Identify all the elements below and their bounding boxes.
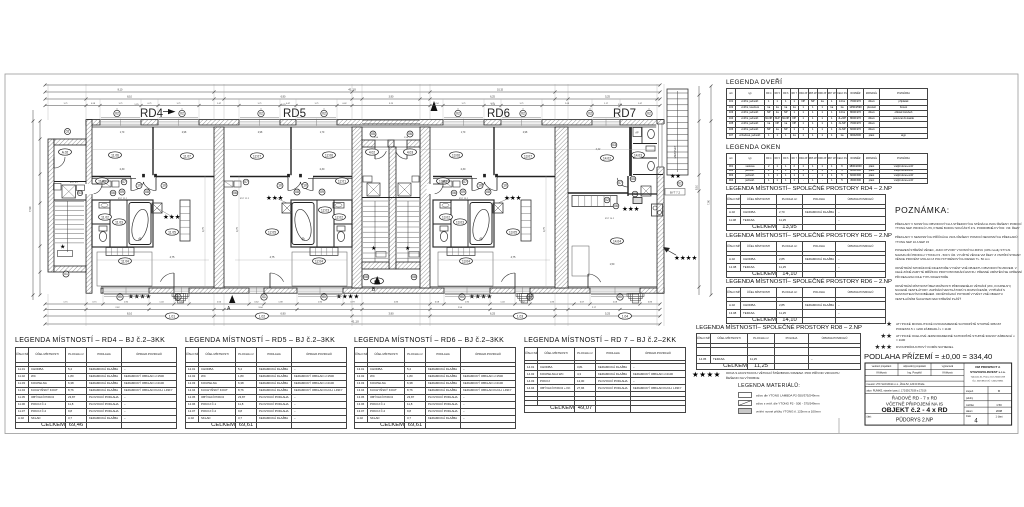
- svg-text:02: 02: [259, 112, 263, 116]
- svg-text:07: 07: [122, 180, 126, 184]
- svg-text:akce: RUMIKE, stavební parc: akce: RUMIKE, stavební parc.č. 172/35/17…: [867, 390, 927, 393]
- svg-text:stupeň: stupeň: [966, 390, 974, 393]
- svg-text:1.02: 1.02: [259, 314, 265, 318]
- svg-text:13.02: 13.02: [442, 215, 450, 219]
- svg-text:02: 02: [521, 112, 525, 116]
- svg-text:★: ★: [60, 244, 65, 251]
- svg-text:1.71: 1.71: [176, 103, 181, 105]
- svg-text:MEZONET: MEZONET: [673, 145, 677, 158]
- svg-text:12.07: 12.07: [253, 154, 261, 158]
- svg-text:RD4: RD4: [140, 108, 164, 120]
- svg-text:2,98: 2,98: [523, 132, 528, 134]
- svg-text:13.03: 13.03: [456, 220, 464, 224]
- svg-text:RD5: RD5: [283, 108, 306, 120]
- svg-text:1.71: 1.71: [63, 301, 68, 303]
- svg-text:13.07: 13.07: [524, 154, 532, 158]
- svg-text:polohy: polohy: [966, 397, 974, 400]
- svg-text:5,25: 5,25: [605, 95, 610, 98]
- svg-text:08: 08: [486, 190, 490, 194]
- svg-text:3,90: 3,90: [388, 312, 394, 316]
- svg-text:5,25: 5,25: [605, 312, 611, 316]
- svg-text:1,50: 1,50: [610, 263, 615, 266]
- svg-text:8,10: 8,10: [118, 88, 123, 91]
- svg-text:zdivo z vnitř. dle YTONG P2 -: zdivo z vnitř. dle YTONG P2 - 500 - 375/…: [756, 402, 820, 406]
- svg-text:11.03: 11.03: [115, 220, 123, 224]
- svg-text:10,15: 10,15: [497, 88, 504, 91]
- svg-text:05: 05: [631, 177, 635, 181]
- svg-text:10: 10: [278, 184, 282, 188]
- svg-text:1.38: 1.38: [278, 301, 283, 303]
- svg-text:02: 02: [115, 112, 119, 116]
- svg-text:0.83: 0.83: [648, 301, 653, 303]
- svg-text:0.67: 0.67: [286, 103, 291, 105]
- svg-text:3.25: 3.25: [389, 103, 394, 105]
- svg-text:07: 07: [244, 180, 248, 184]
- svg-text:Křížková: Křížková: [942, 370, 953, 374]
- svg-text:01: 01: [64, 272, 68, 276]
- svg-text:3.04: 3.04: [258, 307, 263, 309]
- svg-text:STAVOIZOLINVEST s.r.o.: STAVOIZOLINVEST s.r.o.: [970, 370, 1006, 374]
- svg-text:11.05: 11.05: [168, 230, 176, 234]
- svg-text:BYT 4.2: BYT 4.2: [70, 182, 79, 184]
- svg-text:2.08: 2.08: [613, 301, 618, 303]
- svg-text:10: 10: [137, 184, 141, 188]
- svg-text:1.67: 1.67: [638, 103, 643, 105]
- svg-text:PŮDORYS 2.NP: PŮDORYS 2.NP: [896, 417, 934, 424]
- svg-text:6,25: 6,25: [490, 312, 496, 316]
- svg-text:★★★: ★★★: [622, 205, 640, 213]
- svg-text:02: 02: [456, 112, 460, 116]
- svg-text:vypracoval: vypracoval: [942, 365, 954, 368]
- svg-text:0.71: 0.71: [92, 301, 97, 303]
- svg-text:4.02: 4.02: [369, 150, 375, 154]
- svg-text:07: 07: [618, 181, 622, 185]
- svg-text:1.17: 1.17: [604, 103, 609, 105]
- svg-text:Křížková: Křížková: [876, 370, 887, 374]
- svg-text:1.71: 1.71: [118, 103, 123, 105]
- svg-text:01: 01: [460, 295, 464, 299]
- svg-text:14.03: 14.03: [634, 153, 642, 157]
- svg-text:odpovědný projektant: odpovědný projektant: [903, 365, 926, 368]
- svg-text:1.67: 1.67: [217, 103, 222, 105]
- svg-text:Ing. Pospíšil: Ing. Pospíšil: [907, 370, 922, 374]
- svg-text:02: 02: [66, 130, 70, 134]
- svg-text:★★★: ★★★: [266, 194, 284, 202]
- svg-text:2.83: 2.83: [394, 301, 399, 303]
- svg-text:03: 03: [78, 191, 82, 195]
- svg-text:02: 02: [588, 112, 592, 116]
- svg-text:4: 4: [974, 419, 978, 425]
- svg-text:1:50: 1:50: [996, 403, 1002, 407]
- svg-text:06: 06: [111, 191, 115, 195]
- svg-text:12.02: 12.02: [335, 215, 343, 219]
- svg-text:6,90: 6,90: [280, 312, 286, 316]
- svg-text:2.08: 2.08: [565, 103, 570, 105]
- svg-text:10: 10: [303, 184, 307, 188]
- svg-text:1.92: 1.92: [124, 301, 129, 303]
- svg-text:1.04: 1.04: [159, 301, 164, 303]
- svg-text:02: 02: [180, 112, 184, 116]
- svg-text:část:: část:: [867, 416, 872, 419]
- svg-text:★★★★: ★★★★: [674, 254, 697, 262]
- svg-text:1.83: 1.83: [550, 301, 555, 303]
- svg-text:13.05: 13.05: [509, 230, 517, 234]
- svg-text:DM PROSPECT A: DM PROSPECT A: [975, 365, 1001, 369]
- svg-text:BYT 11.2: BYT 11.2: [118, 198, 128, 200]
- svg-text:12.05: 12.05: [268, 230, 276, 234]
- svg-text:investor: ZYF SLOVAKIA s.r.o: investor: ZYF SLOVAKIA s.r.o., Žitná 52,…: [867, 383, 926, 386]
- svg-text:09: 09: [120, 190, 124, 194]
- svg-text:01: 01: [118, 295, 122, 299]
- svg-text:BYT 7.2: BYT 7.2: [670, 190, 680, 194]
- svg-text:09: 09: [461, 190, 465, 194]
- svg-text:2.62: 2.62: [115, 307, 120, 309]
- svg-text:11.07: 11.07: [183, 154, 191, 158]
- svg-text:1,70: 1,70: [320, 132, 325, 134]
- svg-text:A.02: A.02: [62, 150, 69, 154]
- svg-text:08: 08: [412, 275, 416, 279]
- svg-text:4,75: 4,75: [270, 256, 275, 259]
- svg-text:0.58: 0.58: [435, 301, 440, 303]
- svg-text:01: 01: [678, 182, 682, 186]
- svg-text:06: 06: [233, 191, 237, 195]
- svg-text:vedoucí projektant: vedoucí projektant: [872, 365, 892, 368]
- svg-text:★: ★: [371, 245, 376, 252]
- svg-text:1,70: 1,70: [120, 132, 125, 134]
- svg-text:6,90: 6,90: [281, 95, 286, 98]
- svg-text:08: 08: [364, 275, 368, 279]
- svg-text:BYT 14.2: BYT 14.2: [605, 218, 615, 220]
- svg-text:0.62: 0.62: [254, 301, 259, 303]
- svg-text:0.67: 0.67: [580, 301, 585, 303]
- svg-text:1.71: 1.71: [519, 103, 524, 105]
- svg-text:OBJEKT č.2 - 4 x RD: OBJEKT č.2 - 4 x RD: [881, 407, 947, 414]
- svg-text:7,90: 7,90: [28, 206, 32, 212]
- svg-text:0.79: 0.79: [350, 301, 355, 303]
- svg-text:2,30: 2,30: [461, 168, 466, 171]
- svg-text:2008: 2008: [996, 409, 1003, 413]
- svg-text:2,98: 2,98: [258, 132, 263, 134]
- svg-text:A: A: [227, 306, 231, 312]
- svg-text:13.06: 13.06: [452, 153, 460, 157]
- svg-text:RD6: RD6: [487, 108, 510, 120]
- svg-text:datum: datum: [966, 410, 973, 413]
- svg-text:0.62: 0.62: [342, 103, 347, 105]
- svg-text:12.03: 12.03: [321, 208, 329, 212]
- svg-text:09: 09: [320, 190, 324, 194]
- svg-text:1.01: 1.01: [169, 314, 175, 318]
- svg-text:4.03: 4.03: [407, 150, 413, 154]
- svg-text:1.04: 1.04: [622, 314, 628, 318]
- svg-text:BYT 13.2: BYT 13.2: [459, 198, 469, 200]
- svg-text:8,10: 8,10: [127, 312, 133, 316]
- svg-text:★: ★: [405, 245, 410, 252]
- svg-text:ŘADOVÉ RD - 7 x RD: ŘADOVÉ RD - 7 x RD: [892, 394, 938, 401]
- svg-text:zdivo dle YTONG LAMBDA P2-350/: zdivo dle YTONG LAMBDA P2-350/375/249mm: [756, 394, 820, 398]
- svg-text:4,75: 4,75: [236, 227, 239, 232]
- svg-text:4,75: 4,75: [202, 227, 205, 232]
- svg-text:1 část: 1 část: [996, 415, 1003, 419]
- svg-text:11.06: 11.06: [111, 153, 119, 157]
- svg-text:1.92: 1.92: [465, 301, 470, 303]
- svg-text:VČETNĚ PŘIPOJENÍ NA IS: VČETNĚ PŘIPOJENÍ NA IS: [886, 400, 943, 407]
- svg-text:1,50: 1,50: [404, 137, 409, 139]
- svg-text:Táborská 31, Praha 4 tel: 261: Táborská 31, Praha 4 tel: 261215728: [971, 376, 1006, 379]
- svg-text:IČo: 45274851 DIČ: CZ45274851: IČo: 45274851 DIČ: CZ45274851: [972, 380, 1004, 383]
- svg-text:★★★: ★★★: [163, 213, 181, 221]
- svg-text:05: 05: [371, 132, 375, 136]
- svg-text:BYT 12.2: BYT 12.2: [240, 198, 250, 200]
- svg-text:14.04: 14.04: [613, 239, 621, 243]
- svg-text:1.71: 1.71: [461, 103, 466, 105]
- svg-text:12.01: 12.01: [338, 179, 346, 183]
- svg-text:06: 06: [614, 204, 618, 208]
- svg-text:08: 08: [145, 190, 149, 194]
- svg-text:číslo: číslo: [966, 415, 972, 418]
- svg-text:01: 01: [322, 295, 326, 299]
- svg-text:4,75: 4,75: [543, 227, 546, 232]
- svg-text:0.71: 0.71: [147, 103, 152, 105]
- svg-text:1.71: 1.71: [257, 103, 262, 105]
- svg-text:1.71: 1.71: [63, 103, 68, 105]
- svg-text:03: 03: [612, 143, 616, 147]
- svg-text:10: 10: [162, 184, 166, 188]
- svg-text:06: 06: [452, 191, 456, 195]
- svg-text:10: 10: [503, 184, 507, 188]
- svg-text:4,75: 4,75: [511, 256, 516, 259]
- svg-text:1.71: 1.71: [314, 103, 319, 105]
- svg-text:06: 06: [408, 132, 412, 136]
- svg-text:★: ★: [998, 389, 1001, 393]
- svg-text:1.04: 1.04: [500, 301, 505, 303]
- svg-text:2.17: 2.17: [592, 307, 597, 309]
- svg-text:10: 10: [478, 184, 482, 188]
- svg-text:11.02: 11.02: [101, 215, 109, 219]
- svg-text:41,10: 41,10: [351, 320, 359, 324]
- svg-text:1.03: 1.03: [517, 314, 523, 318]
- svg-text:AP: AP: [635, 132, 639, 135]
- svg-text:1.92: 1.92: [318, 301, 323, 303]
- svg-text:vnitřní nosné příčky YTONG tl.: vnitřní nosné příčky YTONG tl. 125mm a 1…: [756, 410, 821, 414]
- svg-text:01: 01: [618, 295, 622, 299]
- svg-text:12.06: 12.06: [325, 153, 333, 157]
- svg-text:2.50: 2.50: [458, 307, 463, 309]
- svg-text:★★: ★★: [670, 173, 681, 180]
- svg-text:měřítko: měřítko: [966, 404, 975, 407]
- svg-text:1,70: 1,70: [461, 132, 466, 134]
- svg-text:★★★: ★★★: [504, 194, 522, 202]
- svg-text:4,75: 4,75: [170, 256, 175, 259]
- svg-text:0.54: 0.54: [434, 103, 439, 105]
- svg-text:8,10: 8,10: [127, 95, 132, 98]
- svg-text:8,10: 8,10: [696, 185, 699, 190]
- svg-text:2,98: 2,98: [182, 132, 187, 134]
- svg-text:02: 02: [322, 112, 326, 116]
- svg-text:07: 07: [463, 180, 467, 184]
- svg-text:RD7: RD7: [613, 108, 636, 120]
- svg-text:2,30: 2,30: [120, 168, 125, 171]
- svg-text:0.58: 0.58: [91, 103, 96, 105]
- svg-text:7,90: 7,90: [708, 200, 711, 205]
- svg-text:2.50: 2.50: [217, 301, 222, 303]
- svg-text:02: 02: [605, 198, 609, 202]
- svg-text:2,30: 2,30: [320, 168, 325, 171]
- svg-text:6,25: 6,25: [490, 95, 495, 98]
- svg-text:08: 08: [295, 190, 299, 194]
- svg-text:1,50: 1,50: [374, 137, 379, 139]
- svg-text:3,90: 3,90: [389, 95, 394, 98]
- svg-text:14.02: 14.02: [603, 156, 611, 160]
- svg-text:02: 02: [647, 112, 651, 116]
- svg-text:41,10: 41,10: [348, 87, 356, 91]
